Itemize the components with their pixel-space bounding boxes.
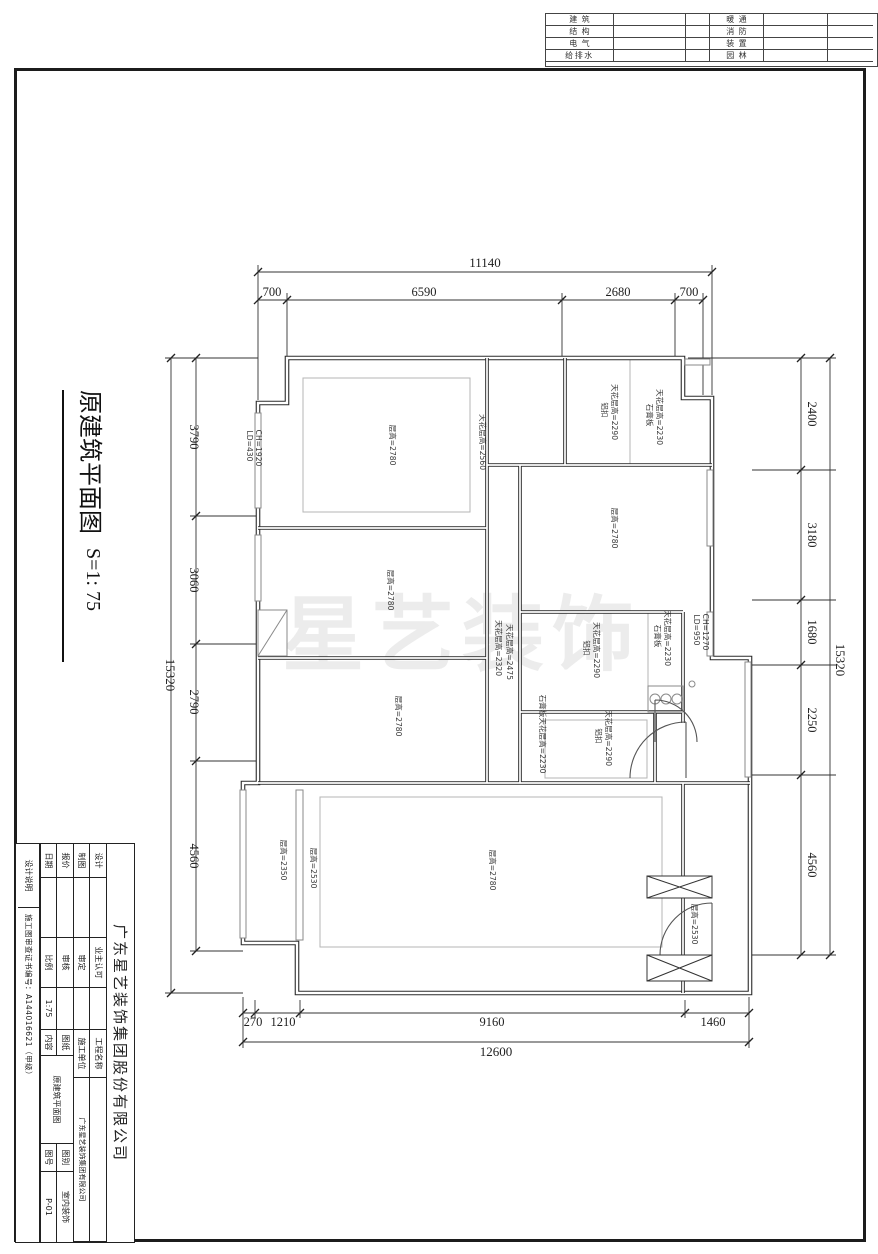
dim-right-seg: 4560 [805, 853, 819, 878]
dim-bottom-seg: 9160 [480, 1015, 505, 1029]
empty-cell [57, 988, 74, 1030]
room-label-balcony: 层高=2350 [279, 840, 289, 881]
label-bath3-aluminum-height: 天花层高=2290 [604, 710, 614, 766]
dim-right-overall: 15320 [833, 644, 848, 677]
label-corridor-ceiling-b: 天花层高=2475 [505, 624, 515, 680]
field-number: 图号 [40, 1144, 57, 1172]
dim-left-seg: 3060 [187, 568, 201, 593]
window-note-ld: LD=950 [692, 615, 701, 646]
window-note-ld: LD=430 [245, 431, 254, 462]
dim-top-seg: 700 [263, 285, 282, 299]
empty-cell [90, 878, 107, 938]
label-bath3-aluminum: 铝扣 [594, 728, 604, 743]
field-category: 图别 [57, 1144, 74, 1172]
empty-cell [73, 878, 90, 938]
label-living-strip: 层高=2530 [309, 848, 319, 889]
field-content-2: 内容 [40, 1030, 57, 1056]
dim-bottom-seg: 1460 [701, 1015, 726, 1029]
room-label-entry: 层高=2530 [690, 904, 700, 945]
title-block: 广东星艺装饰集团股份有限公司 设计 业主认可 制图 审定 报价 审核 日期 比例… [15, 843, 135, 1243]
dim-right-seg: 2250 [805, 708, 819, 733]
field-drafting: 制图 [73, 844, 90, 878]
project-grid: 工程名称 施工单位 广东星艺装饰集团有限公司 图纸 内容 原建筑平面图 图别 室… [40, 1030, 106, 1242]
dim-top-seg: 6590 [412, 285, 437, 299]
label-bath2-gypsum-height: 天花层高=2230 [663, 610, 673, 666]
dim-left-overall: 15320 [163, 659, 178, 692]
window-note-ch: CH=1920 [254, 430, 263, 467]
builder-value: 广东星艺装饰集团有限公司 [73, 1078, 90, 1242]
dim-bottom-overall: 12600 [480, 1044, 513, 1059]
category-value: 室内装饰 [57, 1172, 74, 1242]
dim-left-seg: 4560 [187, 844, 201, 869]
empty-cell [73, 988, 90, 1030]
label-bath2-aluminum: 铝扣 [582, 640, 592, 655]
field-project-name: 工程名称 [90, 1030, 107, 1078]
field-checked: 审核 [57, 938, 74, 988]
empty-cell [57, 878, 74, 938]
design-note: 设计说明 [18, 844, 39, 908]
dim-left-seg: 3790 [187, 425, 201, 450]
label-bath3-gypsum-height: 石膏板天花层高=2230 [538, 695, 548, 774]
field-builder: 施工单位 [73, 1030, 90, 1078]
dim-bottom-seg: 270 [244, 1015, 263, 1029]
empty-cell [90, 988, 107, 1030]
label-bath1-gypsum: 石膏板 [645, 404, 655, 427]
signature-grid: 设计 业主认可 制图 审定 报价 审核 日期 比例 1:75 [40, 844, 106, 1030]
window-note-ch: CH=1270 [701, 614, 710, 651]
dim-left-seg: 2790 [187, 690, 201, 715]
project-name-value [90, 1078, 107, 1242]
dim-right-seg: 1680 [805, 620, 819, 645]
room-label-kitchen: 层高=2780 [610, 508, 620, 549]
content-value: 原建筑平面图 [40, 1056, 73, 1144]
field-date: 日期 [40, 844, 57, 878]
room-labels: 层高=2780 天花层高=2560 铝扣 天花层高=2290 石膏板 天花层高=… [245, 384, 710, 945]
label-bath1-aluminum: 铝扣 [600, 402, 610, 417]
room-label-bedroom3: 层高=2780 [394, 696, 404, 737]
label-bath1-aluminum-height: 天花层高=2290 [610, 384, 620, 440]
dim-top-overall: 11140 [469, 255, 501, 270]
label-bath2-gypsum: 石膏板 [653, 625, 663, 648]
company-name: 广东星艺装饰集团股份有限公司 [106, 844, 134, 1242]
ceiling-label-bedroom1: 天花层高=2560 [478, 414, 488, 470]
drawing-number-value: P-01 [40, 1172, 57, 1242]
hatched-wall-blocks [647, 876, 712, 981]
label-corridor-ceiling-a: 天花层高=2320 [494, 620, 504, 676]
field-quote: 报价 [57, 844, 74, 878]
field-approved: 审定 [73, 938, 90, 988]
field-content-1: 图纸 [57, 1030, 74, 1056]
dim-right-seg: 2400 [805, 402, 819, 427]
dim-right-seg: 3180 [805, 523, 819, 548]
room-label-bedroom1: 层高=2780 [388, 425, 398, 466]
room-label-bedroom2: 层高=2780 [386, 570, 396, 611]
field-design: 设计 [90, 844, 107, 878]
label-bath2-aluminum-height: 天花层高=2290 [592, 622, 602, 678]
dim-bottom-seg: 1210 [271, 1015, 296, 1029]
review-certificate-number: 施工图审查证书编号：A144016621（甲级） [18, 908, 39, 1242]
dim-top-seg: 2680 [606, 285, 631, 299]
scale-value: 1:75 [40, 988, 57, 1030]
label-bath1-gypsum-height: 天花层高=2230 [655, 389, 665, 445]
field-owner-approval: 业主认可 [90, 938, 107, 988]
room-label-living: 层高=2780 [488, 850, 498, 891]
empty-cell [40, 878, 57, 938]
dim-top-seg: 700 [680, 285, 699, 299]
field-scale: 比例 [40, 938, 57, 988]
